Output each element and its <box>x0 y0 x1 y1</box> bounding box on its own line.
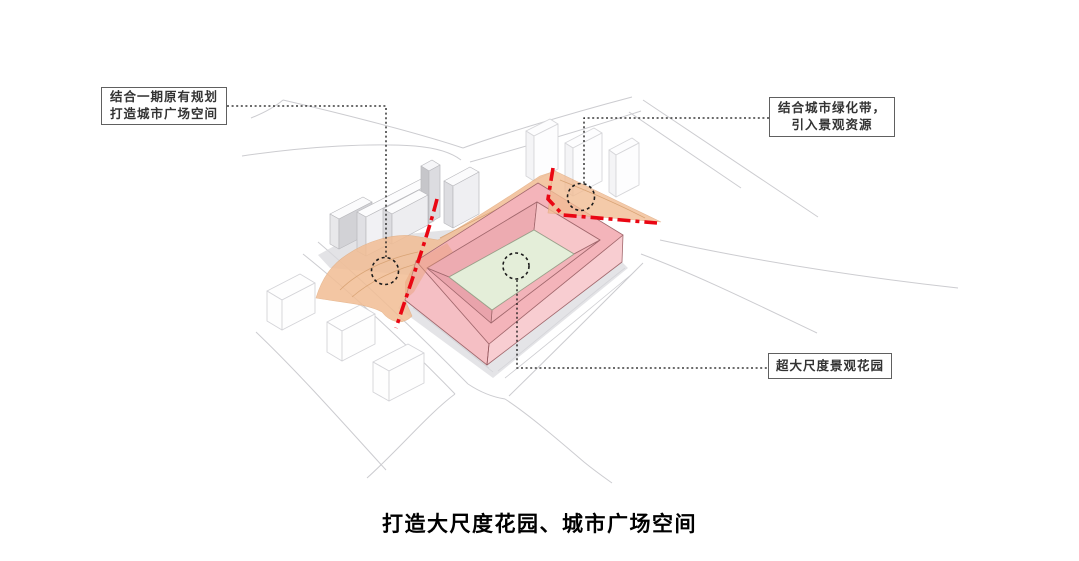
diagram-title: 打造大尺度花园、城市广场空间 <box>0 508 1079 538</box>
road-line <box>283 100 463 148</box>
wireframe-building <box>526 131 534 181</box>
annotation-text-line: 超大尺度景观花园 <box>769 354 891 378</box>
road-line <box>251 100 283 118</box>
wireframe-building <box>609 150 616 197</box>
phase1-building <box>429 165 440 223</box>
road-line <box>629 112 741 188</box>
annotation-top-left: 结合一期原有规划 打造城市广场空间 <box>101 87 227 125</box>
annotation-right: 超大尺度景观花园 <box>768 353 892 379</box>
annotation-text-line: 引入景观资源 <box>770 117 894 134</box>
annotation-text-line: 结合一期原有规划 <box>102 89 226 106</box>
phase1-building <box>330 214 339 249</box>
road-line <box>367 394 455 478</box>
annotation-text-line: 打造城市广场空间 <box>102 106 226 123</box>
road-line <box>242 145 461 160</box>
diagram-canvas: 结合一期原有规划 打造城市广场空间 结合城市绿化带， 引入景观资源 超大尺度景观… <box>0 0 1079 561</box>
site-diagram <box>0 0 1079 561</box>
annotation-top-right: 结合城市绿化带， 引入景观资源 <box>769 97 895 137</box>
road-line <box>256 332 386 470</box>
road-line <box>641 254 817 333</box>
phase1-building <box>444 181 453 228</box>
annotation-text-line: 结合城市绿化带， <box>770 100 894 117</box>
road-line <box>468 384 505 399</box>
road-line <box>505 399 612 483</box>
